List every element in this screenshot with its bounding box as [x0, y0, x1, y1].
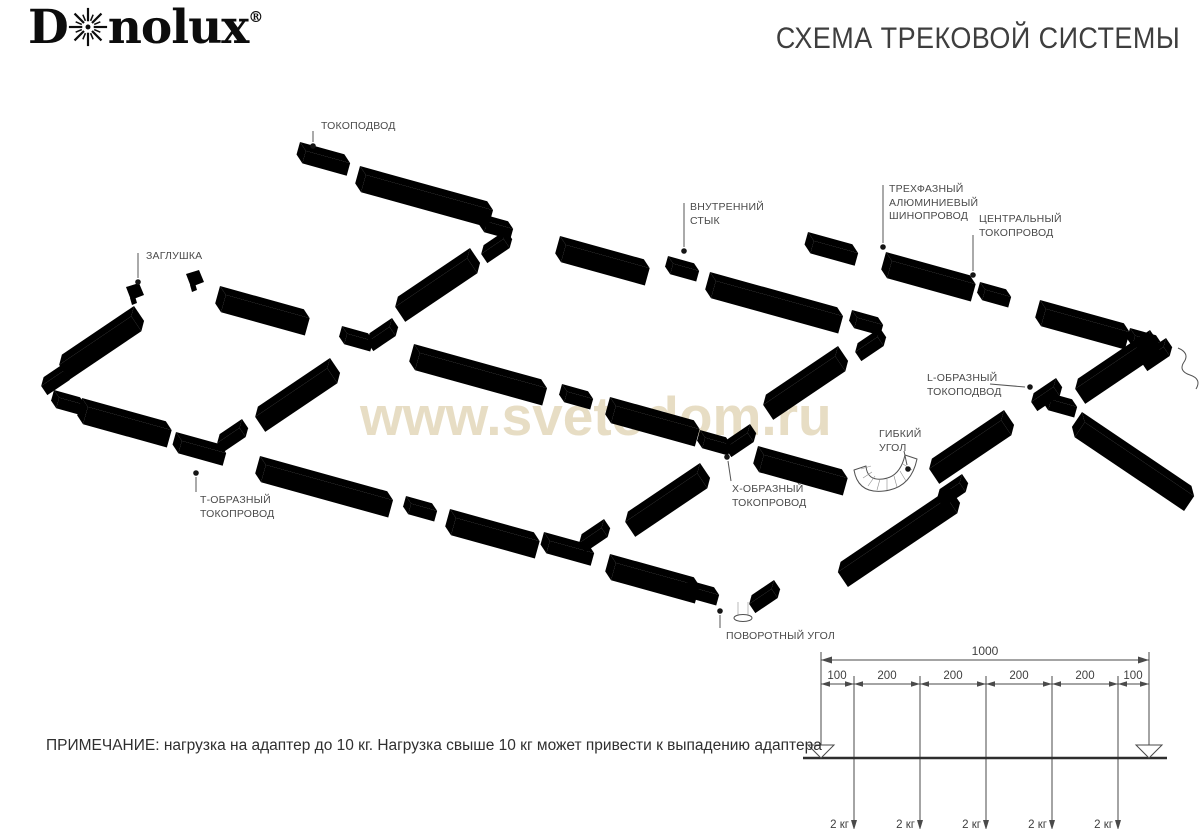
dim-segment: 200: [1009, 670, 1028, 682]
track-rail: [925, 410, 1018, 484]
leader-dot: [310, 143, 316, 149]
leader-dot: [724, 454, 730, 460]
label-l-obrazny-tokopodvod: L-ОБРАЗНЫЙ ТОКОПОДВОД: [927, 372, 1002, 399]
leader-dot: [681, 248, 687, 254]
dim-segment: 200: [943, 670, 962, 682]
support-triangle: [1136, 745, 1162, 758]
dim-segment: 100: [1123, 670, 1142, 682]
leader-dot: [135, 279, 141, 285]
load-label: 2 кг: [1094, 819, 1113, 829]
track-rail: [213, 286, 311, 335]
dim-segment: 200: [877, 670, 896, 682]
aluminium-busbar-rail: [879, 252, 977, 301]
track-rail: [407, 344, 549, 406]
leader-dot: [970, 272, 976, 278]
leader-dot: [717, 608, 723, 614]
power-cable: [1178, 348, 1198, 389]
label-vnutrenniy-styk: ВНУТРЕННИЙ СТЫК: [690, 201, 764, 228]
note-text: ПРИМЕЧАНИЕ: нагрузка на адаптер до 10 кг…: [46, 737, 822, 755]
label-trekhfazny-shinoprovod: ТРЕХФАЗНЫЙ АЛЮМИНИЕВЫЙ ШИНОПРОВОД: [889, 183, 978, 224]
label-zaglushka: ЗАГЛУШКА: [146, 250, 202, 264]
power-feed-connector: [295, 142, 352, 176]
label-x-obrazny-tokoprovod: Х-ОБРАЗНЫЙ ТОКОПРОВОД: [732, 483, 806, 510]
load-label: 2 кг: [830, 819, 849, 829]
track-rail: [603, 397, 701, 446]
track-rail: [621, 463, 714, 537]
dim-segment: 200: [1075, 670, 1094, 682]
label-tsentralny-tokoprovod: ЦЕНТРАЛЬНЫЙ ТОКОПРОВОД: [979, 213, 1062, 240]
end-cap: [126, 283, 144, 305]
power-feed-connector: [803, 232, 860, 266]
track-system-diagram: 1000 100 200 200 200 200 100: [0, 0, 1200, 829]
flexible-corner: [854, 455, 917, 491]
label-povorotny-ugol: ПОВОРОТНЫЙ УГОЛ: [726, 630, 835, 644]
track-rail: [759, 346, 852, 420]
track-rail: [443, 509, 541, 558]
corner-mounting-foot: [734, 602, 752, 622]
leader-dot: [193, 470, 199, 476]
track-rail: [391, 248, 484, 322]
load-label: 2 кг: [1028, 819, 1047, 829]
inner-joint-connector: [663, 256, 700, 281]
track-rail: [253, 456, 395, 518]
track-rail: [1068, 412, 1198, 511]
load-dimension-diagram: 1000 100 200 200 200 200 100: [803, 644, 1167, 829]
track-rail: [553, 236, 651, 285]
inner-joint-connector: [557, 384, 594, 409]
leader-dot: [880, 244, 886, 250]
track-rail: [1033, 300, 1131, 349]
l-feed-connector: [1041, 392, 1078, 417]
label-tokopodvod: ТОКОПОДВОД: [321, 120, 396, 134]
track-rail: [603, 554, 701, 603]
track-rail: [75, 398, 173, 447]
page: D nolux ® СХЕМА ТРЕКОВОЙ СИСТЕМЫ www.sve…: [0, 0, 1200, 829]
leader-dot: [905, 466, 911, 472]
load-label: 2 кг: [896, 819, 915, 829]
dim-total: 1000: [972, 644, 999, 658]
central-feed-connector: [975, 282, 1012, 307]
load-label: 2 кг: [962, 819, 981, 829]
end-cap: [186, 270, 204, 292]
t-connector-stem: [852, 328, 890, 361]
dim-segment: 100: [827, 670, 846, 682]
inner-joint-connector: [401, 496, 438, 521]
track-rail: [353, 166, 495, 228]
track-rail: [703, 272, 845, 334]
label-gibkiy-ugol: ГИБКИЙ УГОЛ: [879, 428, 922, 455]
rotating-corner-connector: [746, 580, 784, 613]
leader-dot: [1027, 384, 1033, 390]
label-t-obrazny-tokoprovod: Т-ОБРАЗНЫЙ ТОКОПРОВОД: [200, 494, 274, 521]
track-rail: [251, 358, 344, 432]
